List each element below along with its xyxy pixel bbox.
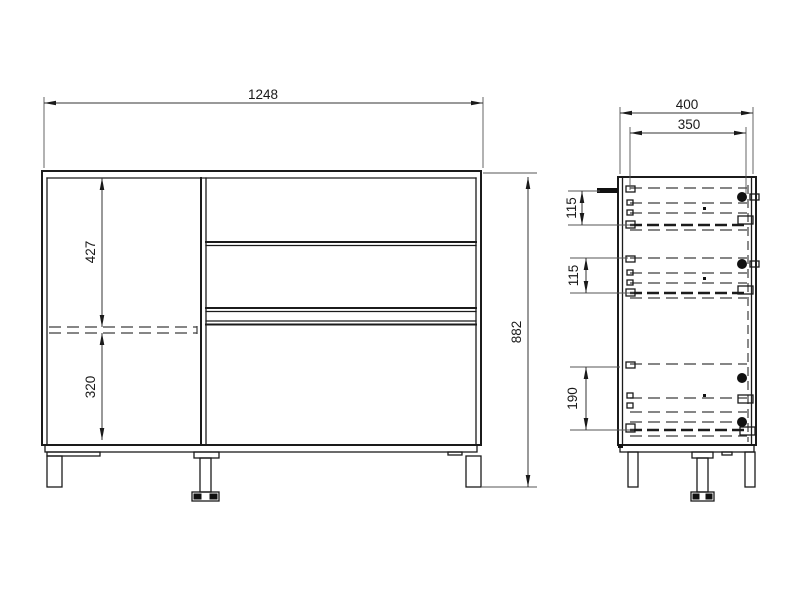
- dimension-front-width: 1248: [44, 87, 483, 168]
- side-inner-depth-label: 350: [678, 117, 701, 132]
- front-shelf-lower-label: 320: [83, 376, 98, 399]
- side-screw-dot-2: [737, 259, 747, 269]
- side-center-mark-1: [703, 207, 706, 210]
- front-right-leg-plate: [448, 452, 462, 455]
- side-front-leg: [745, 452, 755, 487]
- side-depth-label: 400: [676, 97, 699, 112]
- side-drawer2-label: 115: [566, 265, 581, 287]
- front-view: 1248 427 320 882: [42, 87, 537, 501]
- front-center-foot: [192, 452, 219, 501]
- technical-drawing-cabinet: 1248 427 320 882: [0, 0, 800, 600]
- dimension-front-shelf-lower: 320: [83, 333, 102, 440]
- dimension-side-depth: 400: [620, 97, 753, 174]
- side-plinth-corner: [618, 444, 623, 448]
- dimension-side-drawer2: 115: [566, 258, 634, 293]
- front-right-leg: [466, 456, 481, 487]
- side-screw-dot-3: [737, 373, 747, 383]
- side-center-mark-2: [703, 277, 706, 280]
- front-plinth: [45, 445, 477, 452]
- dimension-side-drawer3: 190: [565, 367, 634, 430]
- dimension-front-height: 882: [481, 173, 537, 487]
- dimension-side-inner-depth: 350: [630, 117, 746, 194]
- side-plinth: [620, 445, 754, 452]
- front-width-label: 1248: [248, 87, 278, 102]
- side-carcass-outline: [618, 177, 756, 445]
- front-left-leg: [47, 456, 62, 487]
- side-drawer3-hidden: [626, 362, 755, 436]
- side-screw-dot-4: [737, 417, 747, 427]
- side-center-foot: [691, 452, 714, 501]
- drawing-svg: 1248 427 320 882: [0, 0, 800, 600]
- side-leg-plate-tick: [722, 452, 732, 455]
- dimension-front-shelf-upper: 427: [83, 178, 102, 327]
- side-view: 400 350 115 115 190: [564, 97, 759, 501]
- side-drawer1-label: 115: [564, 197, 579, 219]
- dimension-side-drawer1: 115: [564, 191, 634, 225]
- side-slide-pin: [597, 188, 618, 193]
- side-drawer2-hidden: [626, 256, 759, 298]
- side-drawer1-hidden: [597, 186, 759, 230]
- front-shelf-upper-label: 427: [83, 241, 98, 264]
- side-screw-dot-1: [737, 192, 747, 202]
- side-center-mark-3: [703, 394, 706, 397]
- side-back-leg: [628, 452, 638, 487]
- front-height-label: 882: [509, 321, 524, 344]
- side-drawer3-label: 190: [565, 387, 580, 410]
